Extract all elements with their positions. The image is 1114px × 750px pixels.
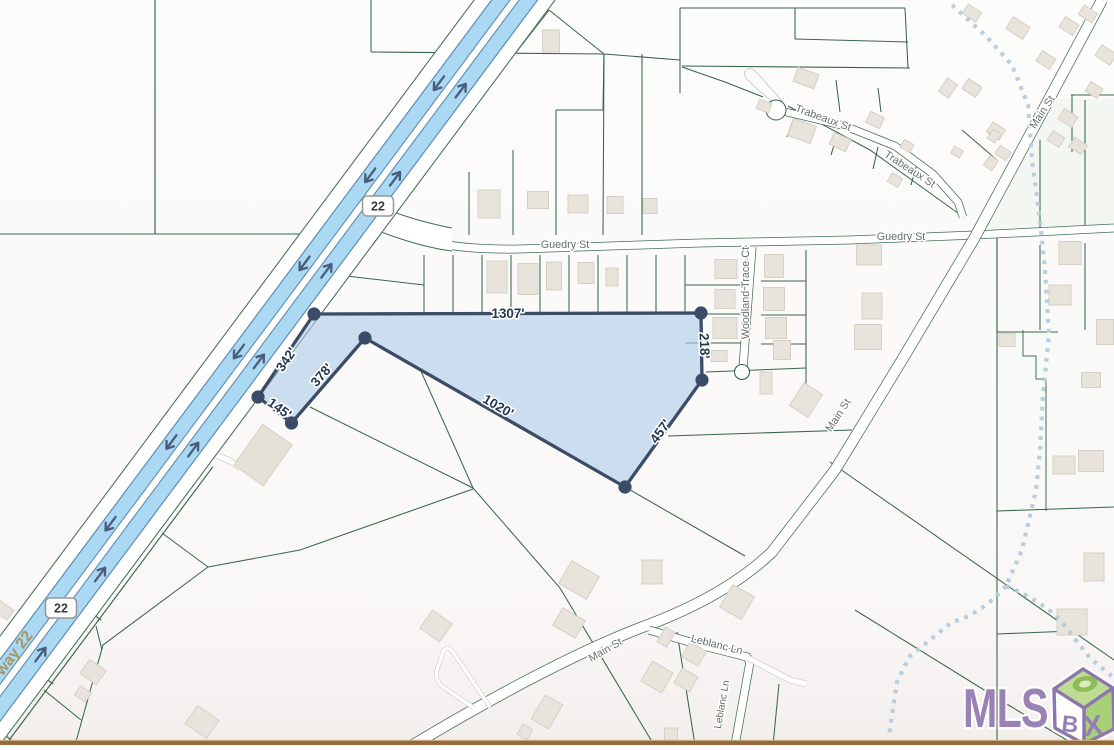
svg-text:22: 22 (371, 200, 385, 214)
svg-text:B: B (1060, 710, 1079, 738)
svg-text:218': 218' (697, 333, 713, 359)
svg-text:1307': 1307' (492, 306, 525, 321)
svg-text:Woodland Trace Ct: Woodland Trace Ct (740, 247, 752, 339)
svg-text:MLS: MLS (963, 678, 1048, 739)
svg-text:22: 22 (54, 602, 68, 616)
svg-text:Guedry St: Guedry St (877, 231, 926, 243)
svg-text:Guedry St: Guedry St (541, 239, 590, 251)
